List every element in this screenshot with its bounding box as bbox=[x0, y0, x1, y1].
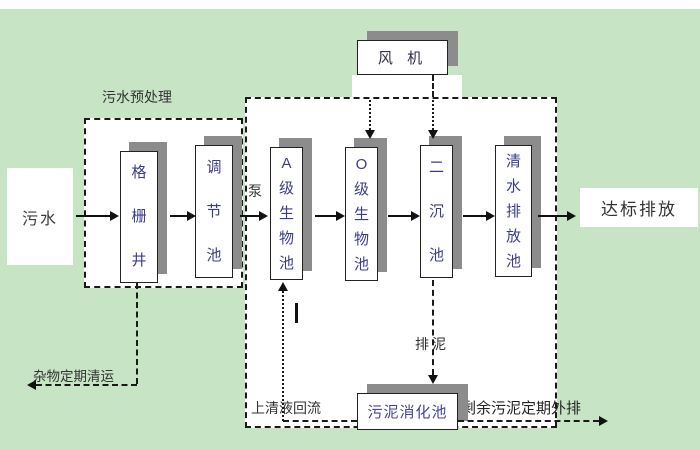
influent-label: 污水 bbox=[22, 205, 58, 229]
fan-node: 风 机 bbox=[357, 40, 448, 75]
discharge-node: 达标排放 bbox=[580, 188, 698, 227]
sludge-digester-label: 污泥消化池 bbox=[367, 401, 447, 422]
top-white-strip bbox=[0, 0, 700, 9]
arrow-secondary-to-clearwater bbox=[463, 215, 487, 217]
grid-well-tank: 格栅井 bbox=[120, 151, 158, 283]
arrowhead-gridwell-to-regulating bbox=[187, 211, 196, 221]
arrow-clearwater-to-discharge bbox=[538, 215, 568, 217]
clear-water-tank-label: 清水排放池 bbox=[506, 149, 522, 274]
fan-background-patch bbox=[352, 75, 462, 97]
arrowhead-influent-to-gridwell bbox=[110, 211, 119, 221]
arrowhead-regulating-to-abio bbox=[259, 211, 268, 221]
arrow-gridwell-to-regulating bbox=[170, 215, 188, 217]
o-bio-tank: O级生物池 bbox=[345, 147, 378, 281]
line-fan-down bbox=[432, 75, 434, 97]
sludge-line-vertical bbox=[432, 280, 434, 375]
excess-sludge-line bbox=[458, 420, 599, 422]
arrow-influent-to-gridwell bbox=[76, 215, 112, 217]
arrowhead-sludge-down bbox=[428, 375, 438, 384]
arrowhead-obio-to-secondary bbox=[411, 211, 420, 221]
grid-well-label: 格栅井 bbox=[131, 151, 147, 283]
secondary-sedimentation-tank: 二沉池 bbox=[420, 145, 453, 278]
return-line-tick bbox=[295, 303, 298, 323]
regulating-tank-label: 调节池 bbox=[206, 146, 222, 278]
regulating-tank: 调节池 bbox=[195, 145, 233, 278]
arrowhead-return-up bbox=[278, 282, 288, 291]
debris-removal-label: 杂物定期清运 bbox=[33, 365, 114, 385]
excess-sludge-label: 剩余污泥定期外排 bbox=[461, 397, 581, 418]
debris-line-vertical bbox=[136, 283, 138, 384]
sludge-digester-node: 污泥消化池 bbox=[357, 393, 458, 430]
secondary-tank-label: 二沉池 bbox=[429, 146, 445, 278]
pump-label: 泵 bbox=[248, 181, 262, 201]
a-bio-tank: A级生物池 bbox=[270, 147, 303, 280]
arrowhead-secondary-to-clearwater bbox=[486, 211, 495, 221]
arrow-abio-to-obio bbox=[315, 215, 337, 217]
arrowhead-excess-right bbox=[599, 416, 608, 426]
influent-node: 污水 bbox=[7, 168, 73, 265]
arrowhead-air-obio bbox=[365, 130, 375, 139]
arrow-regulating-to-abio bbox=[240, 215, 260, 217]
arrow-obio-to-secondary bbox=[388, 215, 412, 217]
return-line-horizontal bbox=[283, 420, 357, 422]
discharge-label: 达标排放 bbox=[601, 195, 677, 220]
air-line-to-obio bbox=[369, 100, 371, 130]
fan-label: 风 机 bbox=[378, 47, 427, 68]
arrowhead-abio-to-obio bbox=[336, 211, 345, 221]
process-flow-diagram: 污水预处理 泵 杂物定期清运 上清液回流 排泥 剩余污泥定期外排 污水 达标排放… bbox=[0, 0, 700, 450]
arrowhead-clearwater-to-discharge bbox=[567, 211, 576, 221]
a-bio-tank-label: A级生物池 bbox=[279, 151, 295, 276]
air-line-to-secondary bbox=[432, 100, 434, 130]
arrowhead-debris-left bbox=[27, 380, 36, 390]
arrowhead-air-secondary bbox=[428, 130, 438, 139]
supernatant-return-label: 上清液回流 bbox=[251, 398, 321, 418]
pretreatment-section-label: 污水预处理 bbox=[102, 87, 172, 107]
o-bio-tank-label: O级生物池 bbox=[354, 152, 370, 277]
debris-line-horizontal bbox=[36, 384, 137, 386]
return-line-vertical bbox=[282, 291, 284, 421]
clear-water-discharge-tank: 清水排放池 bbox=[495, 145, 532, 277]
